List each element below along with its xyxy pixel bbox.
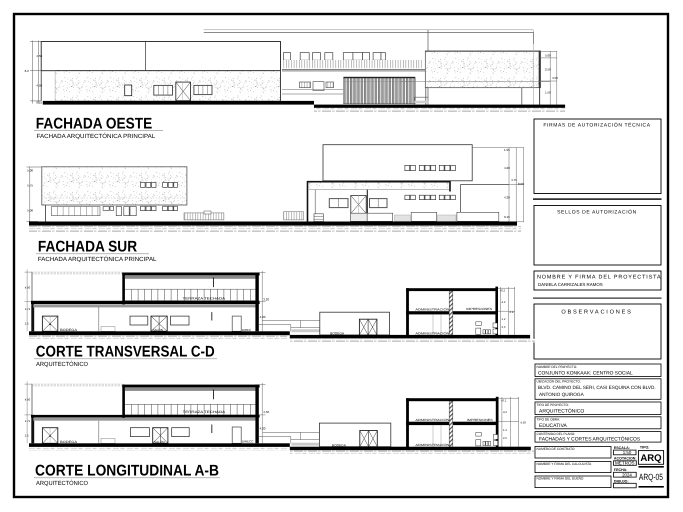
svg-text:4.2: 4.2 — [503, 410, 507, 414]
svg-text:8.00: 8.00 — [518, 182, 524, 186]
svg-text:ADMINISTRACIÓN: ADMINISTRACIÓN — [415, 443, 449, 447]
svg-text:CONJUNTO KONKAAK: CENTRO SOCIA: CONJUNTO KONKAAK: CENTRO SOCIAL — [538, 371, 633, 377]
svg-text:+0.2: +0.2 — [500, 289, 506, 293]
svg-text:CORTE LONGITUDINAL A-B: CORTE LONGITUDINAL A-B — [35, 463, 219, 480]
svg-text:4.50: 4.50 — [25, 285, 31, 289]
svg-text:5.06: 5.06 — [27, 208, 33, 212]
svg-text:1:50: 1:50 — [623, 450, 632, 455]
svg-text:NOMBRE Y FIRMA DEL PROYECT: NOMBRE Y FIRMA DEL PROYECTISTA — [537, 275, 661, 281]
svg-text:0.15: 0.15 — [504, 215, 510, 219]
svg-text:IMPRESIONES: IMPRESIONES — [466, 307, 492, 311]
svg-text:4.30: 4.30 — [504, 196, 510, 200]
svg-text:EDUCATIVA: EDUCATIVA — [539, 423, 568, 429]
svg-text:DANIELA CARRIZALES RAMOS: DANIELA CARRIZALES RAMOS — [538, 282, 603, 287]
svg-text:ADMINISTRACIÓN: ADMINISTRACIÓN — [415, 331, 449, 335]
svg-text:1.95: 1.95 — [504, 148, 510, 152]
svg-text:4.50: 4.50 — [36, 54, 42, 58]
svg-text:2.5: 2.5 — [503, 436, 507, 440]
svg-text:4.20: 4.20 — [260, 315, 266, 319]
svg-text:8.2: 8.2 — [25, 69, 30, 73]
svg-text:5.00: 5.00 — [27, 169, 33, 173]
svg-text:IMPRESIONES: IMPRESIONES — [467, 418, 493, 422]
svg-text:BODEGA: BODEGA — [332, 443, 347, 447]
svg-text:2.50: 2.50 — [545, 68, 551, 72]
svg-text:1.2: 1.2 — [503, 428, 507, 432]
svg-text:OBSERVACIONES: OBSERVACIONES — [561, 310, 632, 316]
svg-text:4.50: 4.50 — [25, 398, 31, 402]
svg-text:5.75: 5.75 — [27, 183, 33, 187]
svg-text:TIPO:: TIPO: — [640, 446, 650, 450]
svg-text:TIPO DE PROYECTO:: TIPO DE PROYECTO: — [537, 403, 569, 407]
svg-text:FACHADA ARQUITECTÓNICA PRINCIP: FACHADA ARQUITECTÓNICA PRINCIPAL — [37, 132, 156, 140]
svg-text:TIPO DE OBRA:: TIPO DE OBRA: — [537, 417, 561, 421]
svg-text:FACHADAS Y CORTES ARQUITECTÓNI: FACHADAS Y CORTES ARQUITECTÓNICOS — [539, 436, 641, 443]
svg-text:5.00: 5.00 — [545, 54, 551, 58]
svg-text:TERRAZA TECHADA: TERRAZA TECHADA — [183, 297, 227, 301]
svg-text:TERRAZA TECHADA: TERRAZA TECHADA — [183, 410, 227, 414]
svg-text:2.5: 2.5 — [25, 322, 29, 326]
svg-text:SELLOS DE AUTORIZACIÓN: SELLOS DE AUTORIZACIÓN — [557, 209, 637, 216]
svg-text:DIREC: DIREC — [242, 328, 252, 332]
svg-text:4.75: 4.75 — [511, 178, 517, 182]
svg-text:NOMBRE Y FIRMA DEL CALCULISTA: NOMBRE Y FIRMA DEL CALCULISTA — [537, 462, 593, 466]
svg-text:4.20: 4.20 — [260, 427, 266, 431]
svg-text:FACHADA SUR: FACHADA SUR — [38, 239, 137, 256]
svg-text:NOMBRE DEL PROYECTO:: NOMBRE DEL PROYECTO: — [537, 365, 578, 369]
svg-text:BLVD. CAMINO DEL SERI, CASI ES: BLVD. CAMINO DEL SERI, CASI ESQUINA CON … — [538, 385, 656, 390]
svg-text:FIRMAS DE AUTORIZACIÓN TÉCN: FIRMAS DE AUTORIZACIÓN TÉCNICA — [543, 122, 650, 129]
svg-text:2024: 2024 — [622, 472, 632, 477]
svg-text:CONTENIDO DEL PLANO:: CONTENIDO DEL PLANO: — [537, 432, 576, 436]
svg-text:4.50: 4.50 — [552, 76, 558, 80]
svg-text:4.2: 4.2 — [502, 300, 506, 304]
svg-text:ADMINISTRACIÓN: ADMINISTRACIÓN — [415, 308, 449, 312]
svg-text:CORTE TRANSVERSAL C-D: CORTE TRANSVERSAL C-D — [36, 344, 215, 361]
svg-text:0.15: 0.15 — [36, 100, 42, 104]
svg-text:4.50: 4.50 — [520, 421, 526, 425]
svg-text:ADMINISTRACIÓN: ADMINISTRACIÓN — [415, 418, 449, 422]
svg-text:FACHADA OESTE: FACHADA OESTE — [36, 115, 152, 132]
svg-text:UBICACIÓN DEL PROYECTO:: UBICACIÓN DEL PROYECTO: — [537, 379, 581, 383]
svg-text:4.50: 4.50 — [263, 410, 269, 414]
svg-text:ARQ-05: ARQ-05 — [639, 472, 663, 482]
svg-text:ARQUITECTÓNICO: ARQUITECTÓNICO — [539, 407, 584, 414]
svg-text:2.4: 2.4 — [510, 310, 514, 314]
svg-text:ARQUITECTÓNICO: ARQUITECTÓNICO — [36, 479, 88, 487]
svg-text:+0.2: +0.2 — [501, 399, 507, 403]
svg-text:4.20: 4.20 — [504, 166, 510, 170]
svg-text:NOMBRE Y FIRMA DEL DUEÑO: NOMBRE Y FIRMA DEL DUEÑO — [537, 477, 584, 481]
svg-text:2.5: 2.5 — [502, 325, 506, 329]
svg-text:1.2: 1.2 — [502, 317, 506, 321]
svg-text:ARQ: ARQ — [640, 453, 662, 464]
svg-text:4.50: 4.50 — [36, 84, 42, 88]
svg-text:DIRECC: DIRECC — [242, 440, 254, 444]
svg-text:1.71: 1.71 — [25, 307, 31, 311]
svg-text:FACHADA ARQUITECTÓNICA PRINCIP: FACHADA ARQUITECTÓNICA PRINCIPAL — [38, 255, 157, 263]
svg-text:1.71: 1.71 — [25, 419, 31, 423]
svg-text:2.5: 2.5 — [25, 434, 29, 438]
svg-text:ANTONIO QUIROGA: ANTONIO QUIROGA — [539, 392, 585, 397]
svg-text:1.50: 1.50 — [545, 91, 551, 95]
svg-text:ARQUITECTÓNICO: ARQUITECTÓNICO — [36, 360, 88, 368]
svg-text:NUMERO DE CONTRATO: NUMERO DE CONTRATO — [537, 447, 575, 451]
svg-text:METROS: METROS — [615, 461, 635, 466]
svg-text:3.20: 3.20 — [263, 297, 269, 301]
svg-text:DIBUJO:: DIBUJO: — [614, 479, 629, 483]
